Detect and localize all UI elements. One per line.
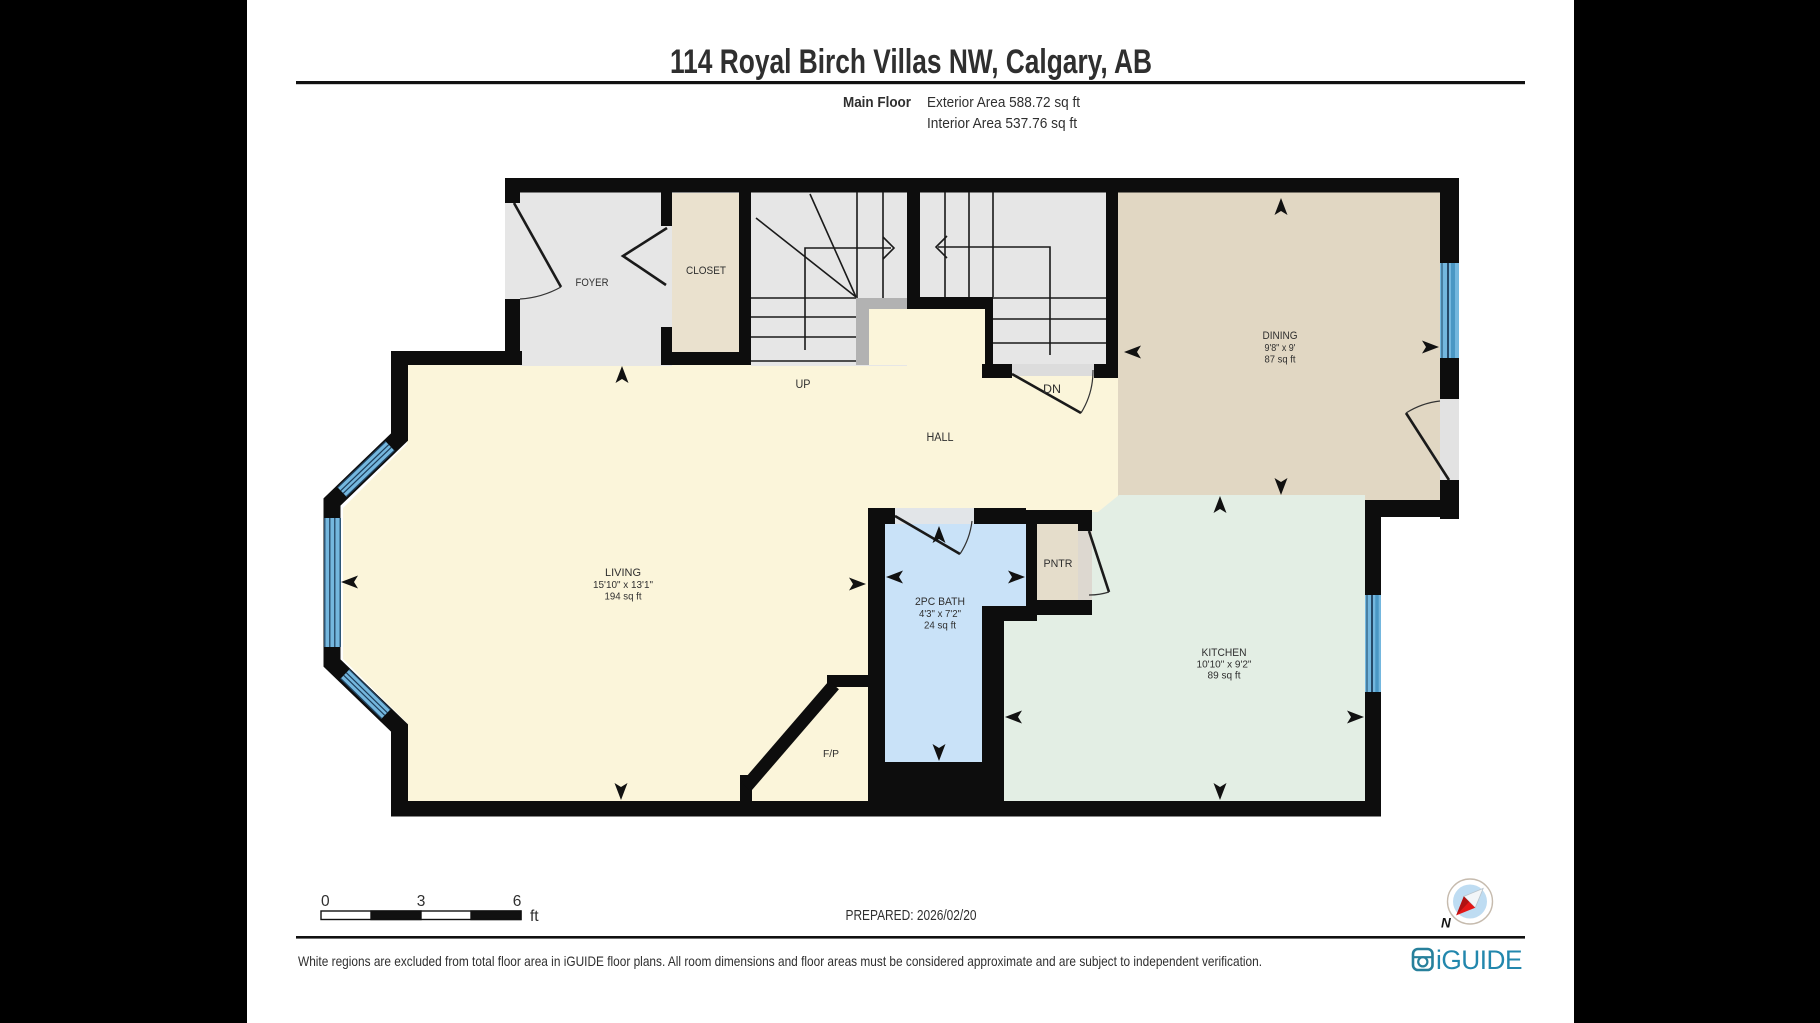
svg-text:HALL: HALL <box>927 432 955 444</box>
svg-text:15'10" x 13'1": 15'10" x 13'1" <box>593 579 653 591</box>
svg-text:iGUIDE: iGUIDE <box>1436 945 1522 975</box>
svg-text:2PC BATH: 2PC BATH <box>915 596 965 608</box>
svg-text:9'8" x 9': 9'8" x 9' <box>1265 342 1296 354</box>
svg-text:Main Floor: Main Floor <box>843 94 911 111</box>
svg-text:CLOSET: CLOSET <box>686 265 726 277</box>
svg-text:Interior Area 537.76 sq ft: Interior Area 537.76 sq ft <box>927 115 1078 132</box>
svg-text:N: N <box>1441 916 1451 931</box>
svg-text:3: 3 <box>417 893 426 910</box>
svg-text:White regions are excluded fro: White regions are excluded from total fl… <box>298 954 1262 969</box>
svg-text:F/P: F/P <box>823 748 839 760</box>
svg-text:6: 6 <box>513 893 522 910</box>
svg-text:Exterior Area 588.72 sq ft: Exterior Area 588.72 sq ft <box>927 94 1081 111</box>
svg-text:DINING: DINING <box>1263 330 1298 342</box>
svg-text:89 sq ft: 89 sq ft <box>1208 670 1241 682</box>
svg-text:24 sq ft: 24 sq ft <box>924 620 956 632</box>
svg-text:KITCHEN: KITCHEN <box>1202 647 1247 659</box>
svg-text:DN: DN <box>1043 384 1061 396</box>
svg-text:0: 0 <box>321 893 330 910</box>
svg-text:FOYER: FOYER <box>576 277 609 289</box>
svg-text:PNTR: PNTR <box>1044 558 1073 570</box>
svg-text:114 Royal Birch Villas NW, Cal: 114 Royal Birch Villas NW, Calgary, AB <box>670 43 1152 81</box>
svg-text:LIVING: LIVING <box>605 567 641 579</box>
svg-text:194 sq ft: 194 sq ft <box>605 591 642 603</box>
svg-text:87 sq ft: 87 sq ft <box>1265 354 1296 366</box>
svg-text:ft: ft <box>530 908 539 925</box>
svg-text:PREPARED: 2026/02/20: PREPARED: 2026/02/20 <box>846 907 977 924</box>
svg-text:4'3" x 7'2": 4'3" x 7'2" <box>919 608 961 620</box>
svg-text:UP: UP <box>796 379 811 391</box>
